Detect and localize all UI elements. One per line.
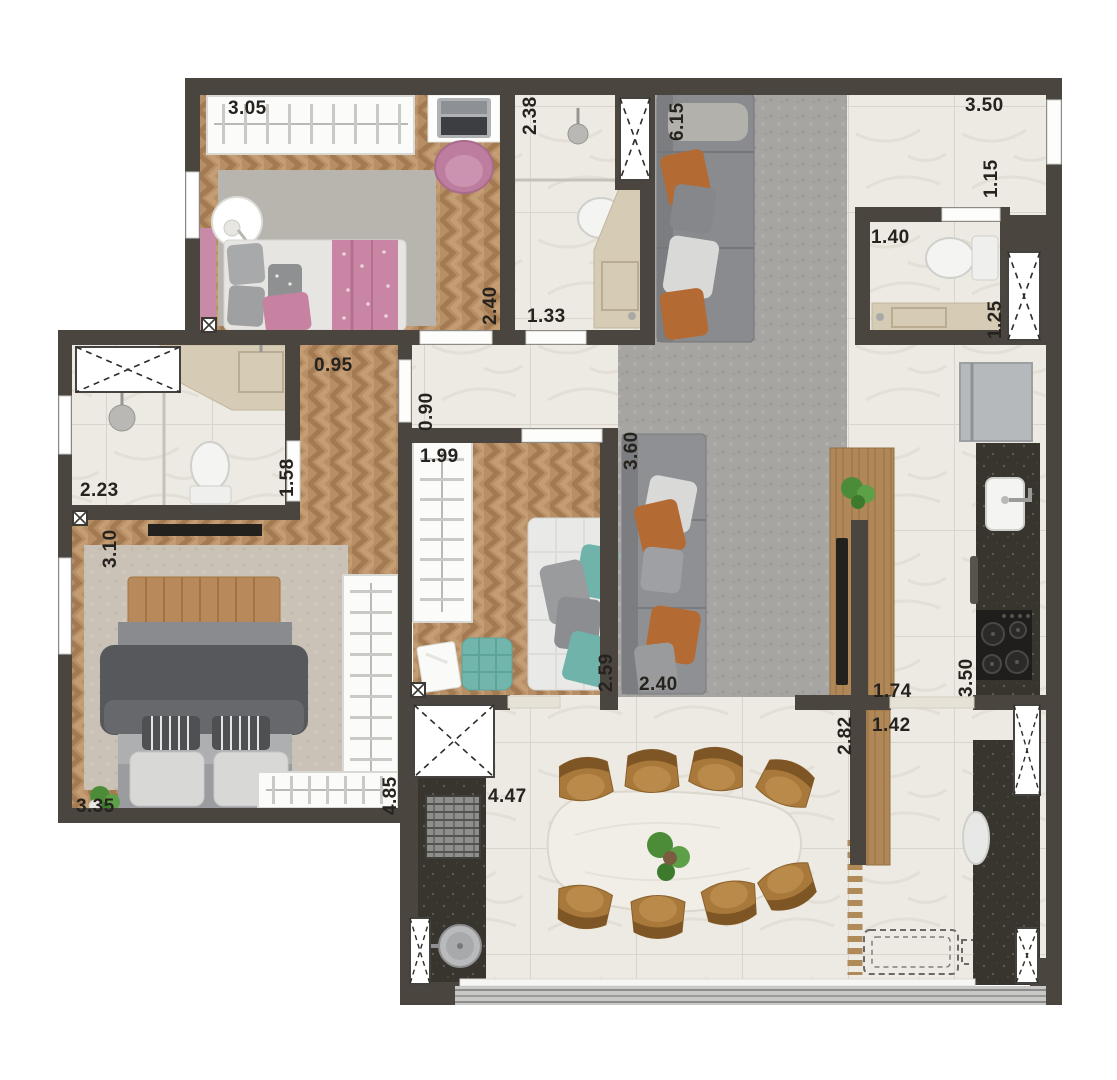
office-closet (413, 440, 472, 622)
shaft-balcony-right-low (1016, 928, 1038, 983)
sofa-small (622, 434, 706, 694)
sprinkler-icon (202, 318, 216, 332)
dim-balcony-width: 4.47 (488, 786, 527, 807)
dim-master-length: 4.85 (380, 776, 401, 815)
dim-office-sofa: 2.59 (596, 653, 617, 692)
wardrobe-strip (200, 228, 216, 332)
dim-living-width: 3.60 (621, 431, 642, 470)
dim-hall-passage: 0.90 (416, 392, 437, 431)
shaft-bath1 (620, 98, 650, 180)
toilet (190, 442, 231, 504)
balcony-threshold (508, 696, 560, 708)
dim-counter-lower: 1.42 (872, 715, 911, 736)
dim-living-sofa: 2.40 (639, 674, 678, 695)
shaft-balcony-right (1014, 705, 1040, 795)
bedroom1-window (186, 172, 199, 238)
dim-master-width-upper: 3.10 (100, 529, 121, 568)
laptop-icon (437, 98, 491, 138)
hall-opening (399, 360, 411, 422)
shaft-balcony-left (414, 705, 494, 777)
dim-entry-width: 3.50 (965, 95, 1004, 116)
desk-chair (435, 141, 493, 193)
desk (428, 95, 500, 142)
dim-living-sofa-wall: 6.15 (667, 102, 688, 141)
dim-bath2-width: 2.23 (80, 480, 119, 501)
oven-handle (970, 556, 978, 604)
service-bath-door (942, 208, 1000, 221)
dim-service-bath-vanity: 1.25 (985, 300, 1006, 339)
cooktop (976, 610, 1032, 680)
shaft-bath2 (76, 347, 180, 392)
shaft-balcony-left-low (410, 918, 430, 984)
pouf (462, 638, 512, 690)
counter-sink (963, 812, 989, 864)
dim-bath2-length: 1.58 (277, 458, 298, 497)
balcony-sliding-door (455, 979, 1046, 1005)
dim-bedroom1-width: 2.40 (480, 286, 501, 325)
floor-plan: 3.05 2.40 2.38 1.33 6.15 3.50 1.15 1.40 … (0, 0, 1117, 1080)
shaft-service-bath (1008, 252, 1040, 340)
fridge (960, 363, 1032, 441)
dim-service-bath-width: 1.40 (871, 227, 910, 248)
dim-hall-width: 0.95 (314, 355, 353, 376)
dim-balcony-depth: 2.82 (835, 716, 856, 755)
bedroom1-door (420, 331, 492, 344)
entry-door (1047, 100, 1061, 164)
floor-plan-canvas: 3.05 2.40 2.38 1.33 6.15 3.50 1.15 1.40 … (0, 0, 1117, 1080)
dim-entry-passage: 1.15 (981, 159, 1002, 198)
dim-bedroom1-closet: 3.05 (228, 98, 267, 119)
grill (426, 796, 480, 858)
single-bed (224, 240, 406, 335)
dim-bath1-width: 1.33 (527, 306, 566, 327)
toilet (926, 236, 998, 280)
kitchen-sink (986, 478, 1030, 530)
bath2-window (59, 396, 71, 454)
sprinkler-icon (411, 683, 425, 697)
tv (836, 538, 848, 685)
dim-kitchen-counter: 3.50 (956, 658, 977, 697)
master-window (59, 558, 71, 654)
dim-master-width-lower: 3.35 (76, 796, 115, 817)
office-door (522, 429, 602, 442)
dim-office-closet: 1.99 (420, 446, 459, 467)
bath1-door (526, 331, 586, 344)
dim-bath1-length: 2.38 (520, 96, 541, 135)
tv (148, 524, 262, 536)
sprinkler-icon (73, 511, 87, 525)
dim-counter-upper: 1.74 (873, 681, 912, 702)
